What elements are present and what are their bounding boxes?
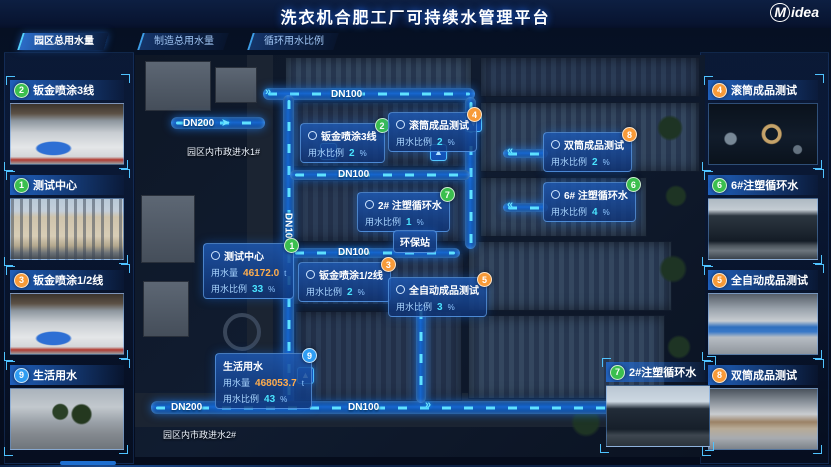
flow-chevron-icon: »	[265, 86, 271, 98]
row-unit: t	[284, 269, 286, 278]
callout-title: 6# 注塑循环水	[564, 187, 628, 202]
row-value: 43	[264, 394, 275, 405]
row-value: 2	[437, 137, 443, 148]
building-roof	[468, 241, 672, 311]
row-label: 用水比例	[551, 155, 587, 168]
callout-title: 双筒成品测试	[564, 137, 624, 152]
callout-title: 生活用水	[223, 358, 263, 373]
flow-arrow-icon: ➤	[221, 116, 230, 129]
row-unit: %	[603, 158, 610, 167]
row-unit: %	[360, 149, 367, 158]
marker-badge: 7	[610, 365, 625, 380]
card-label: 钣金喷涂3线	[33, 82, 94, 98]
marker-badge: 8	[622, 127, 637, 142]
row-label: 用水量	[223, 376, 250, 389]
marker-badge: 5	[712, 273, 727, 288]
tab-recycled-water-ratio[interactable]: 循环用水比例	[247, 33, 339, 50]
target-icon	[211, 251, 220, 260]
marker-badge: 3	[381, 257, 396, 272]
flow-chevron-icon: «	[507, 145, 513, 157]
marker-badge: 3	[14, 273, 29, 288]
row-label: 用水比例	[365, 215, 401, 228]
roundabout	[223, 313, 261, 351]
camera-photo[interactable]	[708, 388, 818, 450]
row-label: 用水比例	[396, 300, 432, 313]
row-label: 用水量	[211, 266, 238, 279]
page-title: 洗衣机合肥工厂可持续水管理平台	[0, 4, 831, 28]
monitor-card-banjin-3[interactable]: 2 钣金喷涂3线	[8, 78, 126, 167]
water-pipe	[416, 305, 426, 403]
target-icon	[365, 200, 374, 209]
pipe-label-dn100-mid1: DN100	[338, 169, 369, 180]
card-title: 5 全自动成品测试	[708, 270, 818, 290]
row-label: 用水比例	[551, 205, 587, 218]
row-unit: %	[417, 218, 424, 227]
marker-badge: 1	[14, 178, 29, 193]
callout-title: 全自动成品测试	[409, 282, 479, 297]
row-value: 46172.0	[243, 268, 279, 279]
target-icon	[551, 140, 560, 149]
row-unit: %	[358, 288, 365, 297]
target-icon	[396, 285, 405, 294]
row-unit: t	[302, 379, 304, 388]
card-title: 9 生活用水	[10, 365, 124, 385]
building-roof	[295, 311, 462, 401]
row-unit: %	[280, 395, 287, 404]
water-pipe	[290, 170, 470, 180]
camera-photo[interactable]	[10, 388, 124, 450]
tree	[667, 335, 691, 359]
card-label: 生活用水	[33, 367, 77, 383]
inlet2-label: 园区内市政进水2#	[163, 428, 236, 441]
card-label: 全自动成品测试	[731, 272, 808, 288]
pipe-label-dn200-bottom: DN200	[171, 402, 202, 413]
marker-badge: 4	[712, 83, 727, 98]
camera-photo[interactable]	[10, 198, 124, 260]
callout-title: 测试中心	[224, 248, 264, 263]
callout-title: 滚筒成品测试	[409, 117, 469, 132]
inlet1-label: 园区内市政进水1#	[187, 145, 260, 158]
map-callout-shuangtong[interactable]: 8 双筒成品测试 用水比例2%	[543, 132, 632, 172]
tab-label: 制造总用水量	[142, 33, 226, 50]
map-callout-ceshi-center[interactable]: 1 测试中心 用水量46172.0t 用水比例33%	[203, 243, 294, 299]
marker-badge: 9	[302, 348, 317, 363]
map-callout-huanbao-station[interactable]: 环保站	[393, 230, 437, 253]
flow-chevron-icon: «	[507, 199, 513, 211]
row-value: 4	[592, 207, 598, 218]
monitor-card-guntong[interactable]: 4 滚筒成品测试	[706, 78, 820, 167]
callout-title: 2# 注塑循环水	[378, 197, 442, 212]
row-label: 用水比例	[396, 135, 432, 148]
card-label: 测试中心	[33, 177, 77, 193]
row-label: 用水比例	[306, 285, 342, 298]
monitor-card-ceshi-center[interactable]: 1 测试中心	[8, 173, 126, 262]
target-icon	[396, 120, 405, 129]
monitor-card-shuangtong[interactable]: 8 双筒成品测试	[706, 363, 820, 452]
tab-label: 循环用水比例	[252, 33, 336, 50]
map-callout-zhusu-2[interactable]: 7 2# 注塑循环水 用水比例1%	[357, 192, 450, 232]
marker-badge: 6	[712, 178, 727, 193]
target-icon	[551, 190, 560, 199]
marker-badge: 9	[14, 368, 29, 383]
target-icon	[306, 270, 315, 279]
tab-label: 园区总用水量	[22, 33, 106, 50]
midea-logo: Midea	[770, 4, 819, 20]
row-unit: %	[448, 138, 455, 147]
monitor-card-zhusu-6[interactable]: 6 6#注塑循环水	[706, 173, 820, 262]
building	[141, 195, 195, 263]
header-divider	[0, 26, 831, 28]
card-label: 2#注塑循环水	[629, 364, 696, 380]
callout-title: 环保站	[400, 234, 430, 249]
card-title: 8 双筒成品测试	[708, 365, 818, 385]
pipe-label-dn100-mid2: DN100	[338, 247, 369, 258]
marker-badge: 4	[467, 107, 482, 122]
row-label: 用水比例	[308, 146, 344, 159]
monitor-card-zhusu-2[interactable]: 7 2#注塑循环水	[604, 360, 712, 449]
camera-photo[interactable]	[10, 293, 124, 355]
card-label: 钣金喷涂1/2线	[33, 272, 103, 288]
camera-photo[interactable]	[606, 385, 710, 447]
marker-badge: 7	[440, 187, 455, 202]
tab-manufacturing-total-water[interactable]: 制造总用水量	[137, 33, 229, 50]
camera-photo[interactable]	[708, 103, 818, 165]
tree	[659, 255, 687, 283]
card-label: 滚筒成品测试	[731, 82, 797, 98]
card-title: 6 6#注塑循环水	[708, 175, 818, 195]
target-icon	[308, 131, 317, 140]
card-label: 双筒成品测试	[731, 367, 797, 383]
marker-badge: 2	[14, 83, 29, 98]
building-roof	[480, 57, 700, 97]
row-value: 2	[347, 287, 353, 298]
water-pipe	[263, 88, 475, 100]
map-callout-zhusu-6[interactable]: 6 6# 注塑循环水 用水比例4%	[543, 182, 636, 222]
row-value: 1	[406, 217, 412, 228]
building-roof	[285, 57, 472, 91]
flow-chevron-icon: »	[425, 399, 431, 411]
camera-photo[interactable]	[708, 293, 818, 355]
camera-photo[interactable]	[708, 198, 818, 260]
map-callout-guntong[interactable]: 4 滚筒成品测试 用水比例2%	[388, 112, 477, 152]
monitor-card-quanzidong[interactable]: 5 全自动成品测试	[706, 268, 820, 357]
map-callout-banjin-3[interactable]: 2 钣金喷涂3线 用水比例2%	[300, 123, 385, 163]
pipe-label-dn200-top: DN200	[183, 118, 214, 129]
card-title: 2 钣金喷涂3线	[10, 80, 124, 100]
tree	[657, 115, 683, 141]
row-label: 用水比例	[211, 282, 247, 295]
card-label: 6#注塑循环水	[731, 177, 798, 193]
card-title: 1 测试中心	[10, 175, 124, 195]
row-unit: %	[603, 208, 610, 217]
marker-badge: 6	[626, 177, 641, 192]
marker-badge: 8	[712, 368, 727, 383]
row-value: 2	[592, 157, 598, 168]
card-title: 4 滚筒成品测试	[708, 80, 818, 100]
card-title: 7 2#注塑循环水	[606, 362, 710, 382]
row-value: 3	[437, 302, 443, 313]
callout-title: 钣金喷涂1/2线	[319, 267, 383, 282]
marker-badge: 5	[477, 272, 492, 287]
row-value: 468053.7	[255, 378, 297, 389]
header-bar: 洗衣机合肥工厂可持续水管理平台 Midea	[0, 0, 831, 28]
monitor-card-shenghuo[interactable]: 9 生活用水	[8, 363, 126, 452]
row-value: 2	[349, 148, 355, 159]
midea-logo-ring-icon: M	[770, 3, 790, 22]
callout-title: 钣金喷涂3线	[321, 128, 377, 143]
row-label: 用水比例	[223, 392, 259, 405]
map-callout-shenghuo[interactable]: 9 生活用水 用水量468053.7t 用水比例43%	[215, 353, 312, 409]
map-callout-quanzidong[interactable]: 5 全自动成品测试 用水比例3%	[388, 277, 487, 317]
camera-photo[interactable]	[10, 103, 124, 165]
midea-logo-text: idea	[791, 4, 819, 20]
card-title: 3 钣金喷涂1/2线	[10, 270, 124, 290]
pipe-label-dn100-top: DN100	[331, 89, 362, 100]
dashboard: 洗衣机合肥工厂可持续水管理平台 Midea 园区总用水量 制造总用水量 循环用水…	[0, 0, 831, 467]
map-callout-banjin-12[interactable]: 3 钣金喷涂1/2线 用水比例2%	[298, 262, 391, 302]
tab-park-total-water[interactable]: 园区总用水量	[17, 33, 109, 50]
building	[215, 67, 257, 103]
row-value: 33	[252, 284, 263, 295]
row-unit: %	[268, 285, 275, 294]
tree	[665, 185, 687, 207]
row-unit: %	[448, 303, 455, 312]
monitor-card-banjin-12[interactable]: 3 钣金喷涂1/2线	[8, 268, 126, 357]
building	[143, 281, 189, 337]
building	[145, 61, 211, 111]
pipe-label-dn100-bottom: DN100	[348, 402, 379, 413]
